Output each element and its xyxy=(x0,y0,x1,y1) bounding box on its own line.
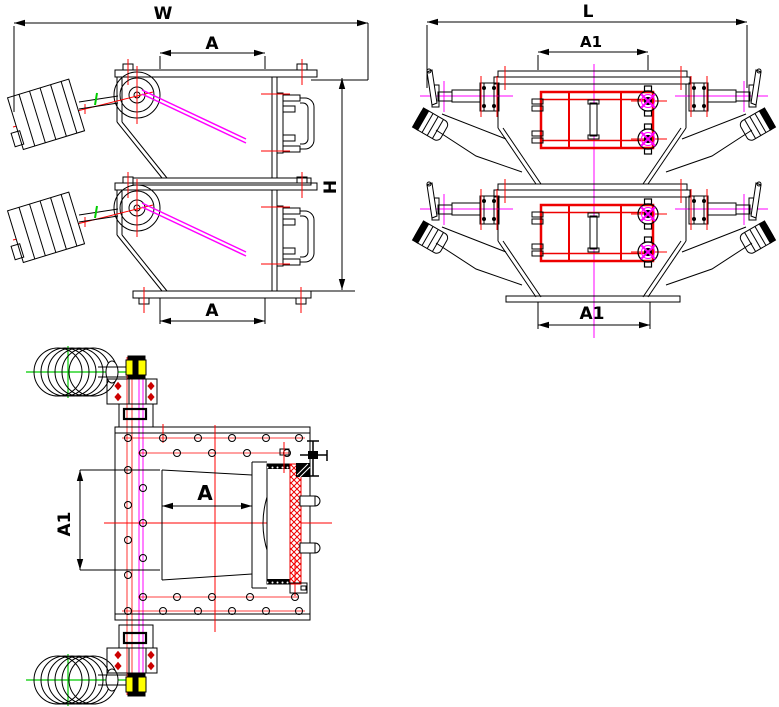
guide-pin xyxy=(300,496,320,506)
dimension-a-top: A xyxy=(160,34,265,69)
w-label: W xyxy=(154,4,173,24)
a1-bottom-label: A1 xyxy=(580,304,605,324)
dimension-a1-top: A1 xyxy=(538,33,648,70)
h-label: H xyxy=(321,180,341,194)
guide-pin xyxy=(300,543,320,553)
l-label: L xyxy=(583,2,594,22)
dimension-a-plan: A xyxy=(162,481,252,509)
side-view: L A1 A1 xyxy=(413,2,776,338)
front-unit-2 xyxy=(1,172,317,298)
a-plan-label: A xyxy=(197,481,213,505)
cad-drawing-canvas: W A H A xyxy=(0,0,779,707)
front-view: W A H A xyxy=(1,4,368,324)
a1-top-label: A1 xyxy=(580,33,602,51)
plan-view: A A1 xyxy=(26,346,332,706)
door-plate xyxy=(267,464,290,584)
front-unit-1 xyxy=(1,59,317,185)
dimension-a-bottom: A xyxy=(160,298,265,324)
three-view-technical-drawing: W A H A xyxy=(0,0,779,707)
plan-drive-bottom xyxy=(26,625,157,706)
dimension-h: H xyxy=(311,78,368,291)
a1-plan-label: A1 xyxy=(55,512,75,537)
plan-drive-top xyxy=(26,346,157,427)
dimension-a1-bottom: A1 xyxy=(538,302,650,329)
a-bottom-label: A xyxy=(205,301,219,321)
a-top-label: A xyxy=(205,34,219,54)
outlet-flange xyxy=(506,296,680,302)
door-assembly xyxy=(263,441,327,596)
